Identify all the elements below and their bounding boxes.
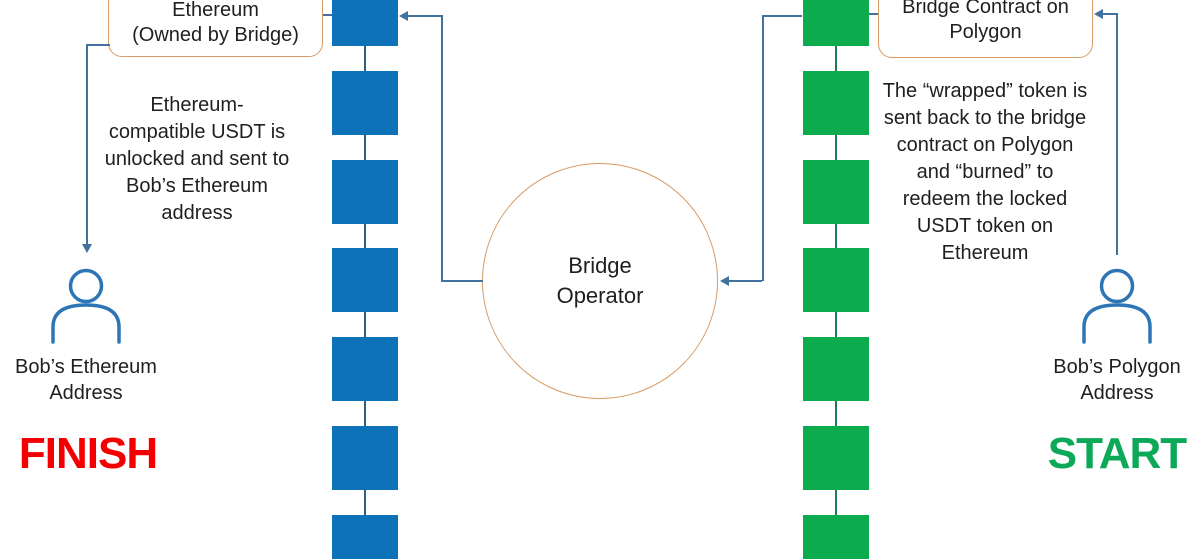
ethereum-blockchain-block [332, 160, 398, 224]
bridge-operator-circle: Bridge Operator [482, 163, 718, 399]
arrowhead-left-icon [399, 11, 408, 21]
arrowhead-left-icon [1094, 9, 1103, 19]
polygon-blockchain-block [803, 337, 869, 401]
polygon-blockchain-block [803, 0, 869, 46]
person-icon [1079, 266, 1155, 344]
arrowhead-down-icon [82, 244, 92, 253]
bridge-diagram: Ethereum (Owned by Bridge) Bridge Contra… [0, 0, 1198, 559]
ethereum-blockchain-block [332, 426, 398, 490]
arrow-segment [86, 44, 110, 46]
ethereum-blockchain-column [332, 0, 398, 559]
burn-note: The “wrapped” token is sent back to the … [864, 78, 1106, 267]
eth-address-label: Bob’s Ethereum Address [1, 354, 171, 406]
poly-box-chain-stub [869, 13, 878, 15]
finish-marker: FINISH [4, 430, 172, 478]
person-icon [48, 266, 124, 344]
arrow-segment [762, 15, 802, 17]
ethereum-blockchain-block [332, 248, 398, 312]
polygon-blockchain-block [803, 515, 869, 559]
arrow-segment [441, 15, 443, 281]
arrow-segment [762, 15, 764, 281]
unlock-note: Ethereum- compatible USDT is unlocked an… [90, 92, 304, 227]
ethereum-bridge-contract-box: Ethereum (Owned by Bridge) [108, 0, 323, 57]
ethereum-blockchain-block [332, 71, 398, 135]
ethereum-blockchain-block [332, 515, 398, 559]
arrow-segment [1103, 13, 1117, 15]
polygon-blockchain-block [803, 426, 869, 490]
arrow-segment [407, 15, 441, 17]
polygon-blockchain-block [803, 71, 869, 135]
ethereum-blockchain-block [332, 337, 398, 401]
polygon-bridge-contract-box: Bridge Contract on Polygon [878, 0, 1093, 58]
polygon-blockchain-block [803, 248, 869, 312]
eth-box-chain-stub [323, 14, 332, 16]
arrow-segment [729, 280, 762, 282]
arrow-segment [441, 280, 483, 282]
arrow-segment [86, 44, 88, 244]
arrowhead-left-icon [720, 276, 729, 286]
ethereum-blockchain-block [332, 0, 398, 46]
polygon-blockchain-column [803, 0, 869, 559]
polygon-blockchain-block [803, 160, 869, 224]
poly-address-label: Bob’s Polygon Address [1032, 354, 1198, 406]
arrow-segment [1116, 13, 1118, 255]
start-marker: START [1033, 430, 1198, 478]
